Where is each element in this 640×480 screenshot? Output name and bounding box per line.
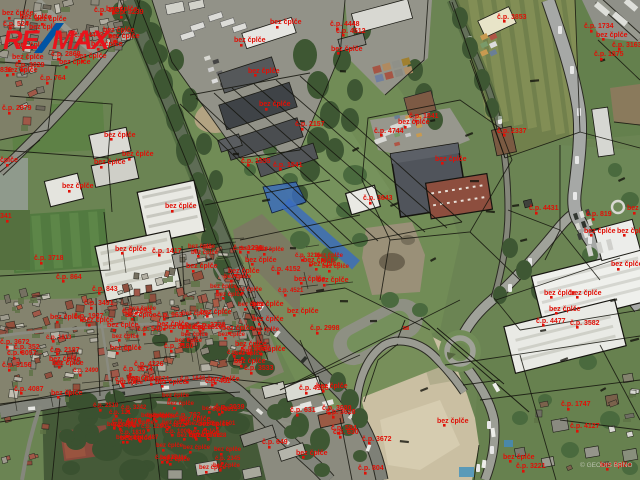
svg-text:bez čplče: bez čplče xyxy=(248,68,280,75)
svg-text:bez čplče: bez čplče xyxy=(235,287,263,293)
svg-text:341: 341 xyxy=(0,213,12,220)
svg-text:č.p. 4431: č.p. 4431 xyxy=(529,205,559,212)
svg-text:č.p. 2337: č.p. 2337 xyxy=(497,128,527,135)
svg-text:č.p. 3643: č.p. 3643 xyxy=(363,195,393,202)
svg-text:č.p. 764: č.p. 764 xyxy=(40,75,66,82)
svg-text:č.p. 649: č.p. 649 xyxy=(262,439,288,446)
svg-text:bez čplče: bez čplče xyxy=(234,37,266,44)
svg-text:bez čplče: bez čplče xyxy=(235,341,267,348)
svg-text:bez čplče: bez čplče xyxy=(59,59,91,66)
svg-text:č.p. 3156: č.p. 3156 xyxy=(2,362,32,369)
svg-text:bez čplče: bez čplče xyxy=(238,302,266,308)
svg-text:č.p. 4087: č.p. 4087 xyxy=(14,386,44,393)
svg-text:č.p. 864: č.p. 864 xyxy=(56,274,82,281)
svg-text:č.p. 3628: č.p. 3628 xyxy=(326,409,356,416)
svg-text:bez čplče: bez čplče xyxy=(122,151,154,158)
svg-text:bez čplče: bez čplče xyxy=(317,277,349,284)
svg-text:bez čplče: bez čplče xyxy=(191,250,219,256)
svg-text:bez čplče: bez čplče xyxy=(127,375,159,382)
svg-text:bez čplče: bez čplče xyxy=(51,390,83,397)
svg-text:bez čplče: bez čplče xyxy=(208,376,240,383)
svg-text:bez čplče: bez čplče xyxy=(259,101,291,108)
svg-text:bez čplče: bez čplče xyxy=(115,246,147,253)
svg-text:čplče: čplče xyxy=(0,157,18,164)
svg-text:č.p. 1646: č.p. 1646 xyxy=(180,376,206,382)
svg-text:č.p. 4512: č.p. 4512 xyxy=(336,28,366,35)
svg-text:č.p. 1674: č.p. 1674 xyxy=(123,366,153,373)
svg-text:bez čplče: bez čplče xyxy=(596,32,628,39)
svg-text:MAX: MAX xyxy=(52,25,112,55)
svg-text:č.p. 2979: č.p. 2979 xyxy=(2,105,32,112)
svg-text:bez čplče: bez čplče xyxy=(186,263,218,270)
svg-text:bez čplče: bez čplče xyxy=(331,46,363,53)
svg-text:bez čplče: bez čplče xyxy=(163,457,191,463)
svg-text:bez čplče: bez čplče xyxy=(270,19,302,26)
svg-text:č.p. 2157: č.p. 2157 xyxy=(295,121,325,128)
svg-text:bez čplče: bez čplče xyxy=(570,290,602,297)
svg-text:bez čplče: bez čplče xyxy=(296,450,328,457)
svg-text:bez čplče: bez čplče xyxy=(177,433,205,439)
svg-text:č.p. 3491: č.p. 3491 xyxy=(84,300,114,307)
svg-text:č.p. 963: č.p. 963 xyxy=(157,312,183,319)
svg-text:bez čplče: bez čplče xyxy=(35,16,67,23)
svg-text:č.p. 3853: č.p. 3853 xyxy=(497,14,527,21)
svg-text:č.p. 1927: č.p. 1927 xyxy=(74,313,104,320)
svg-text:č.p. 1541: č.p. 1541 xyxy=(273,162,303,169)
svg-text:bez čplče: bez čplče xyxy=(94,159,126,166)
svg-text:bez čplče: bez čplče xyxy=(147,413,175,419)
svg-text:bez čplče: bez čplče xyxy=(182,311,210,317)
svg-text:č.p. 3163: č.p. 3163 xyxy=(612,42,640,49)
svg-text:č.p. 3221: č.p. 3221 xyxy=(516,463,546,470)
svg-text:č.p. 3672: č.p. 3672 xyxy=(362,436,392,443)
svg-text:bez čplče: bez čplče xyxy=(584,228,616,235)
svg-text:bez čplče: bez čplče xyxy=(108,33,140,40)
svg-text:č.p. 3582: č.p. 3582 xyxy=(570,320,600,327)
svg-text:bez čplče: bez čplče xyxy=(12,54,44,61)
svg-text:bez čplče: bez čplče xyxy=(213,463,241,469)
svg-text:č.p. 4152: č.p. 4152 xyxy=(271,266,301,273)
svg-text:č.p. 4477: č.p. 4477 xyxy=(536,318,566,325)
svg-text:č.p. 631: č.p. 631 xyxy=(290,407,316,414)
svg-text:č.p. 1734: č.p. 1734 xyxy=(584,23,614,30)
svg-text:č.p. 1875: č.p. 1875 xyxy=(594,51,624,58)
svg-text:bez čplče: bez čplče xyxy=(218,332,246,338)
svg-text:č.p. 1501: č.p. 1501 xyxy=(210,421,236,427)
svg-text:bez čplče: bez čplče xyxy=(112,334,140,340)
svg-text:č.p. 131: č.p. 131 xyxy=(109,410,132,416)
svg-text:č.p. 3180: č.p. 3180 xyxy=(164,343,194,350)
svg-text:č.p. 1417: č.p. 1417 xyxy=(152,248,182,255)
svg-text:bez čplče: bez čplče xyxy=(175,338,203,344)
svg-text:bez čplče: bez čplče xyxy=(165,203,197,210)
svg-text:bez čplče: bez čplče xyxy=(120,435,152,442)
svg-text:č.p. 4521: č.p. 4521 xyxy=(278,288,304,294)
svg-text:č.p. 843: č.p. 843 xyxy=(92,286,118,293)
svg-text:č.p. 2187: č.p. 2187 xyxy=(50,347,80,354)
svg-text:č.p. 819: č.p. 819 xyxy=(586,211,612,218)
svg-text:č.p. 3239: č.p. 3239 xyxy=(114,9,144,16)
svg-text:bez čplče: bez čplče xyxy=(157,321,189,328)
svg-text:bez čplče: bez čplče xyxy=(127,420,155,426)
svg-text:bez čplče: bez čplče xyxy=(49,356,81,363)
svg-text:bez čplče: bez čplče xyxy=(611,261,640,268)
svg-text:bez čplče: bez čplče xyxy=(252,316,284,323)
svg-text:č.p. 630: č.p. 630 xyxy=(333,429,359,436)
svg-text:bez čplče: bez čplče xyxy=(435,156,467,163)
svg-text:bez čplče: bez čplče xyxy=(503,454,535,461)
svg-text:bez čplče: bez čplče xyxy=(110,345,142,352)
svg-text:bez čplče: bez čplče xyxy=(210,284,238,290)
svg-text:bez čplče: bez čplče xyxy=(167,401,195,407)
svg-text:bez čplče: bez čplče xyxy=(617,228,640,235)
svg-text:č.p. 352: č.p. 352 xyxy=(14,344,40,351)
svg-text:RE: RE xyxy=(3,25,40,55)
svg-text:č.p. 4127: č.p. 4127 xyxy=(570,423,600,430)
svg-text:č.p. 2345: č.p. 2345 xyxy=(215,456,241,462)
svg-text:č.p. 2510: č.p. 2510 xyxy=(93,403,119,409)
svg-text:bez čplče: bez čplče xyxy=(214,447,242,453)
svg-text:bez čplče: bez čplče xyxy=(309,261,341,268)
svg-text:č.p. 3029: č.p. 3029 xyxy=(15,62,45,69)
svg-text:č.p. 3533: č.p. 3533 xyxy=(244,365,274,372)
svg-text:č.p. 3718: č.p. 3718 xyxy=(34,255,64,262)
svg-text:č.p. 1813: č.p. 1813 xyxy=(46,335,72,341)
svg-text:bez čplče: bez čplče xyxy=(234,358,266,365)
svg-text:bez čplče: bez čplče xyxy=(245,257,277,264)
svg-text:č.p. 2490: č.p. 2490 xyxy=(73,368,99,374)
svg-text:bez čplče: bez čplče xyxy=(162,393,190,399)
svg-text:č.p. 2998: č.p. 2998 xyxy=(310,325,340,332)
svg-text:č.p. 4744: č.p. 4744 xyxy=(374,128,404,135)
svg-text:bez čplče: bez čplče xyxy=(156,443,184,449)
svg-text:č.p. 2294: č.p. 2294 xyxy=(227,350,253,356)
svg-text:bez čplče: bez čplče xyxy=(62,183,94,190)
svg-text:č.p. 1239: č.p. 1239 xyxy=(233,245,263,252)
svg-text:bez čplče: bez čplče xyxy=(129,306,157,312)
svg-text:bez čplče: bez čplče xyxy=(104,132,136,139)
svg-text:bez čplče: bez čplče xyxy=(224,274,252,280)
svg-text:č.p. 804: č.p. 804 xyxy=(358,465,384,472)
svg-text:č.p. 4448: č.p. 4448 xyxy=(330,21,360,28)
svg-text:bez čplče: bez čplče xyxy=(222,325,254,332)
svg-text:bez čplče: bez čplče xyxy=(549,306,581,313)
svg-text:bez čplče: bez čplče xyxy=(437,418,469,425)
svg-text:bez č: bez č xyxy=(627,205,640,212)
svg-text:č.p. 1315: č.p. 1315 xyxy=(212,407,238,413)
svg-text:bez čplče: bez čplče xyxy=(316,383,348,390)
svg-text:bez čplče: bez čplče xyxy=(398,119,430,126)
svg-text:bez čplče: bez čplče xyxy=(252,327,280,333)
svg-text:© GEODIS BRNO: © GEODIS BRNO xyxy=(580,461,632,469)
svg-text:č.p. 3216: č.p. 3216 xyxy=(295,253,321,259)
svg-text:č.p. 1747: č.p. 1747 xyxy=(561,401,591,408)
svg-text:bez čplče: bez čplče xyxy=(183,445,211,451)
svg-text:bez čplče: bez čplče xyxy=(287,308,319,315)
svg-text:č.p. 1555: č.p. 1555 xyxy=(241,158,271,165)
